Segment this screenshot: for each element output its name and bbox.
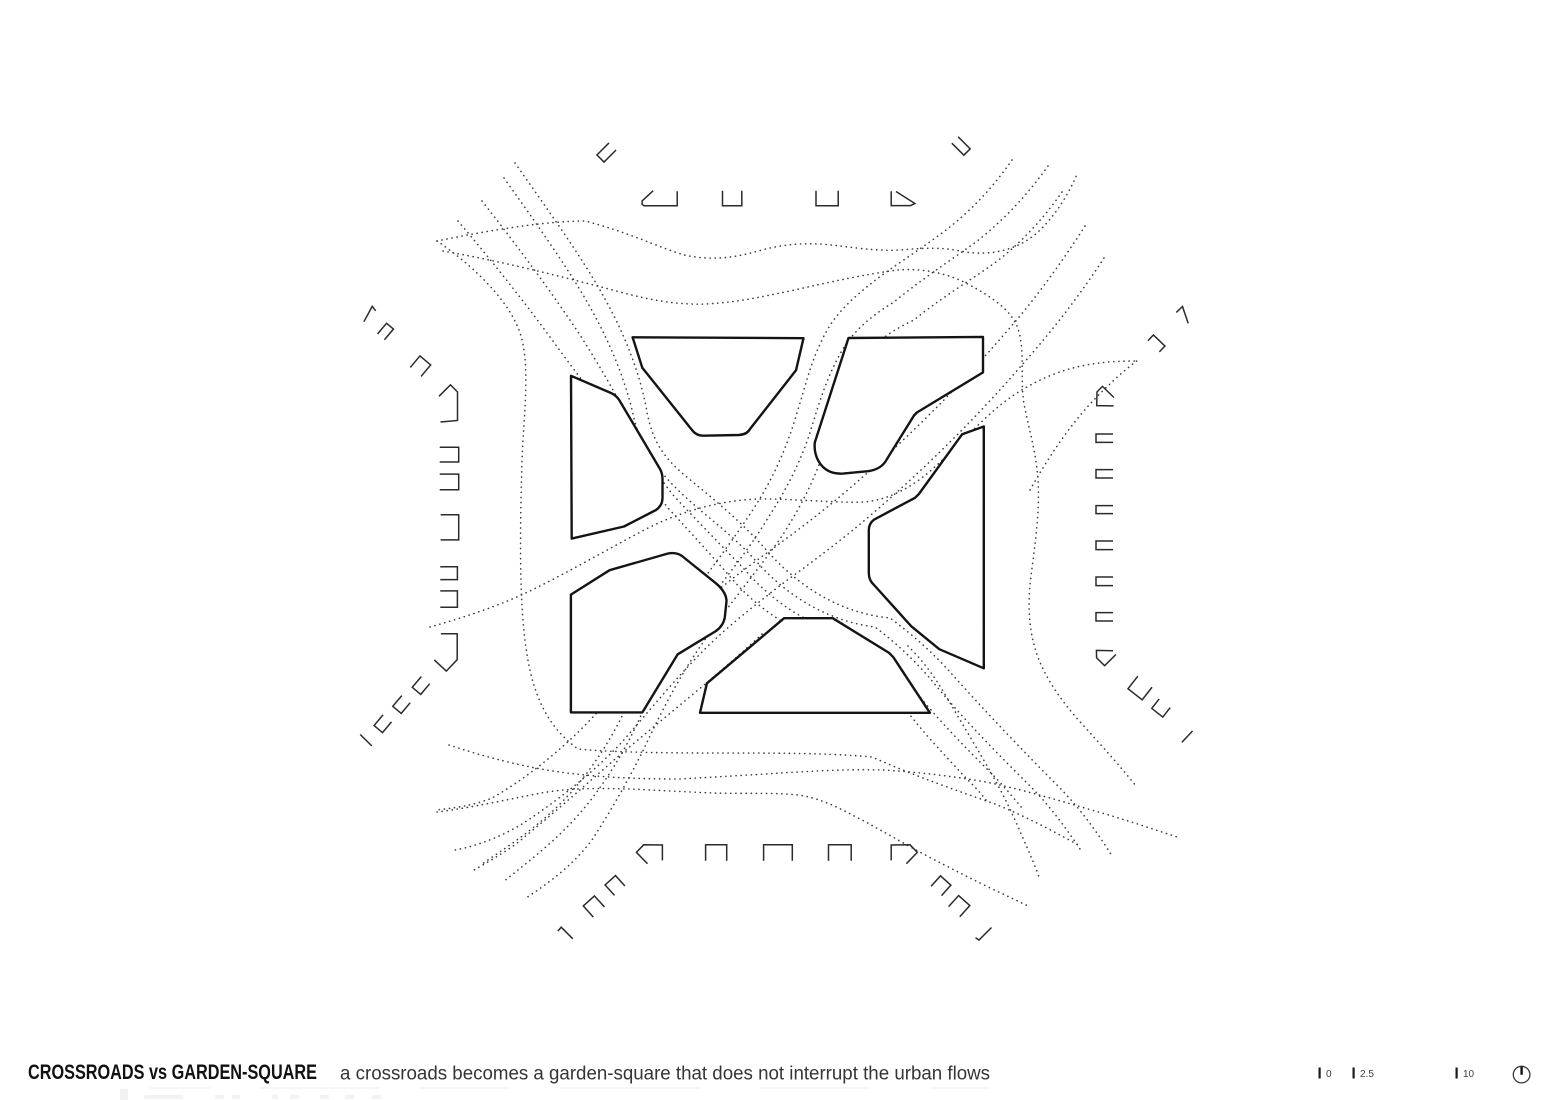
svg-text:0: 0 [1326, 1069, 1332, 1080]
svg-text:CROSSROADS vs GARDEN-SQUARE: CROSSROADS vs GARDEN-SQUARE [28, 1061, 317, 1084]
svg-text:10: 10 [1463, 1069, 1475, 1080]
svg-text:a crossroads becomes a garden-: a crossroads becomes a garden-square tha… [340, 1064, 990, 1085]
svg-text:2.5: 2.5 [1360, 1069, 1374, 1080]
